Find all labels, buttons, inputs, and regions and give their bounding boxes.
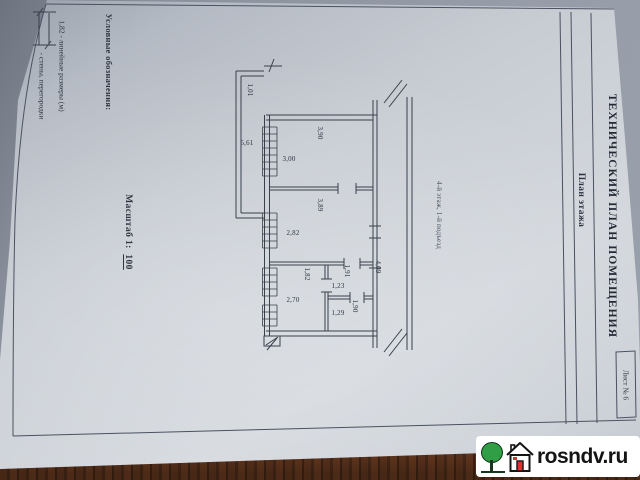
floor-plan — [236, 59, 412, 356]
dimension-label: 1,29 — [331, 309, 344, 317]
watermark-logo: rosndv.ru — [476, 436, 640, 477]
house-icon — [505, 441, 535, 473]
scale-text: Масштаб 1: — [123, 194, 133, 249]
sheet-number: Лист № 6 — [622, 370, 631, 400]
dimension-label: 1,23 — [331, 282, 344, 290]
dimension-label: 3,89 — [316, 198, 324, 211]
document-linework — [0, 0, 640, 480]
floor-note: 4-й этаж, 1-й подъезд — [435, 181, 443, 249]
dimension-label: 3,90 — [316, 126, 324, 139]
dimension-label: 2,82 — [286, 229, 299, 237]
legend-wall-item: - стены, перегородки — [38, 53, 47, 120]
tree-icon — [481, 441, 507, 473]
legend-dimension-item: 1,82 - линейные размеры (м) — [58, 20, 67, 111]
dimension-label: 2,70 — [286, 296, 299, 304]
document-subtitle: План этажа — [576, 173, 586, 228]
legend-heading: Условные обозначения: — [104, 14, 114, 111]
document-title: ТЕХНИЧЕСКИЙ ПЛАН ПОМЕЩЕНИЯ — [606, 94, 618, 338]
dimension-label: 1,01 — [246, 83, 254, 96]
dimension-label: 4,09 — [374, 260, 382, 273]
photo-of-technical-plan: 1,82 - линейные размеры (м) - стены, пер… — [0, 0, 640, 480]
scale-label: Масштаб 1: 100 — [123, 194, 133, 270]
dimension-label: 3,00 — [282, 155, 295, 163]
scale-value: 100 — [123, 254, 133, 269]
dimension-label: 1,90 — [351, 299, 359, 312]
dimension-label: 1,91 — [343, 264, 351, 277]
dimension-label: 5,61 — [240, 139, 253, 147]
dimension-label: 1,82 — [303, 267, 311, 280]
watermark-text: rosndv.ru — [537, 445, 628, 469]
